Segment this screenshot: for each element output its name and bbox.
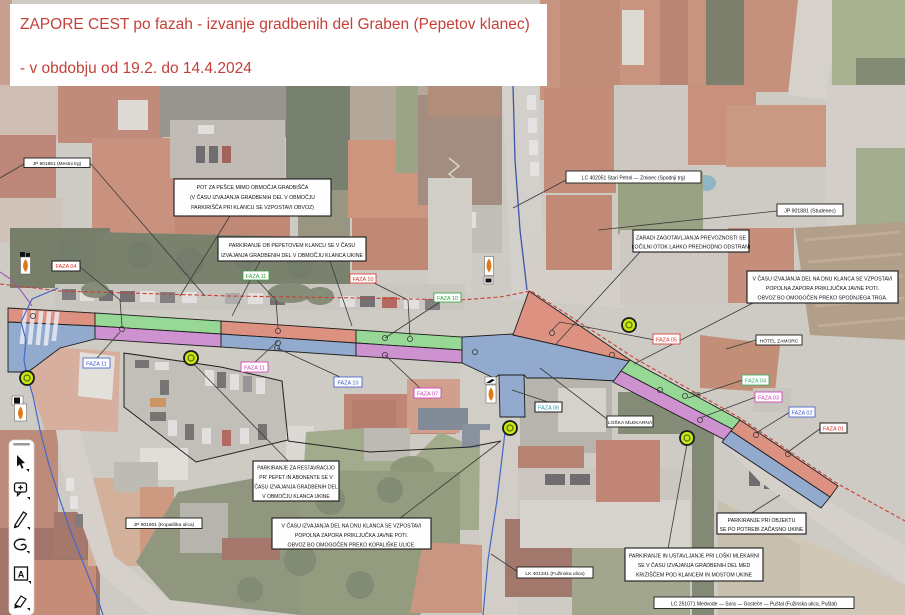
svg-text:PARKIRANJE PRI OBJEKTU: PARKIRANJE PRI OBJEKTU [728,518,796,524]
svg-text:OBVOZ BO OMOGOČEN PREKO KOPALI: OBVOZ BO OMOGOČEN PREKO KOPALIŠKE ULICE. [288,542,416,549]
svg-text:LK 401341 (Fužinska ulica): LK 401341 (Fužinska ulica) [525,571,585,577]
svg-text:FAZA 07: FAZA 07 [417,392,438,398]
svg-text:FAZA 11: FAZA 11 [244,366,265,372]
svg-text:OBVOZ BO OMOGOČEN PREKO SPODNJ: OBVOZ BO OMOGOČEN PREKO SPODNJEGA TRGA. [758,295,888,302]
svg-text:FAZA 10: FAZA 10 [337,381,358,387]
svg-text:FAZA 02: FAZA 02 [791,411,812,417]
svg-text:FAZA 04: FAZA 04 [55,264,76,270]
svg-text:LC 251071 Medvode — Sora — Gos: LC 251071 Medvode — Sora — Gosteče — Puš… [671,601,837,607]
svg-text:FAZA 03: FAZA 03 [758,396,779,402]
svg-text:LC 402051 Stari Petrol — Zmine: LC 402051 Stari Petrol — Zminec (Spodnji… [582,176,686,182]
svg-text:V ČASU IZVAJANJA DEL NA DNU KL: V ČASU IZVAJANJA DEL NA DNU KLANCA SE VZ… [753,276,893,283]
svg-text:LOČILNI OTOK LAHKO PREDHODNO O: LOČILNI OTOK LAHKO PREDHODNO ODSTRANI [632,244,751,251]
svg-text:SE PO POTREBI ZAČASNO UKINE: SE PO POTREBI ZAČASNO UKINE [720,526,804,533]
svg-text:ZARADI ZAGOTAVLJANJA PREVOZNOS: ZARADI ZAGOTAVLJANJA PREVOZNOSTI SE [636,236,746,242]
svg-text:V OBMOČJU KLANCA UKINE: V OBMOČJU KLANCA UKINE [262,493,330,500]
svg-text:FAZA 11: FAZA 11 [246,274,267,280]
svg-text:JP 901881 (Studenec): JP 901881 (Studenec) [784,209,836,215]
svg-text:SE V ČASU IZVAJANJA GRADBENIH: SE V ČASU IZVAJANJA GRADBENIH DEL MED [638,562,751,569]
svg-text:FAZA 10: FAZA 10 [437,296,458,302]
svg-text:PARKIRANJE IN USTAVLJANJE PRI: PARKIRANJE IN USTAVLJANJE PRI LOŠKI MLEK… [629,553,759,560]
svg-text:FAZA 11: FAZA 11 [86,362,107,368]
svg-text:KRIŽIŠČEM POD KLANCEM IN MOSTO: KRIŽIŠČEM POD KLANCEM IN MOSTOM UKINE [636,571,753,579]
svg-text:PR' PEPET IN ABONENTE SE V: PR' PEPET IN ABONENTE SE V [259,475,333,481]
svg-text:HOTEL ZAMORC: HOTEL ZAMORC [760,339,799,345]
svg-text:PARKIRANJE OB PEPETOVEM KLANCU: PARKIRANJE OB PEPETOVEM KLANCU SE V ČASU [229,242,356,249]
svg-text:V ČASU IZVAJANJA DEL NA DNU KL: V ČASU IZVAJANJA DEL NA DNU KLANCA SE VZ… [282,523,422,530]
svg-text:FAZA 10: FAZA 10 [352,277,373,283]
svg-text:ČASU IZVAJANJA GRADBENIH DEL: ČASU IZVAJANJA GRADBENIH DEL [254,484,337,491]
svg-text:FAZA 06: FAZA 06 [538,406,559,412]
svg-text:LOŠKA MLEKARNA: LOŠKA MLEKARNA [608,419,653,426]
svg-text:A: A [18,570,25,580]
svg-text:FAZA 01: FAZA 01 [823,427,844,433]
svg-text:POPOLNA ZAPORA PRIKLJUČKA JAVN: POPOLNA ZAPORA PRIKLJUČKA JAVNE POTI. [295,532,408,539]
svg-text:ZAPORE CEST po fazah - izvanje: ZAPORE CEST po fazah - izvanje gradbenih… [20,16,530,33]
svg-text:POPOLNA ZAPORA PRIKLJUČKA JAVN: POPOLNA ZAPORA PRIKLJUČKA JAVNE POTI. [766,285,879,292]
svg-text:PARKIRIŠČA PRI KLANCU SE VZPOS: PARKIRIŠČA PRI KLANCU SE VZPOSTAVI OBVOZ… [191,204,314,211]
svg-text:- v obdobju od 19.2. do 14.4.2: - v obdobju od 19.2. do 14.4.2024 [20,60,252,77]
svg-text:FAZA 05: FAZA 05 [656,338,677,344]
svg-text:IZVAJANJA GRADBENIH DEL V OBMO: IZVAJANJA GRADBENIH DEL V OBMOČJU KLANCA… [221,252,363,259]
svg-text:JP 901851 (Mestni trg): JP 901851 (Mestni trg) [33,161,82,167]
svg-text:FAZA 04: FAZA 04 [745,379,766,385]
svg-text:(V ČASU IZVAJANJA GRADBENIH DE: (V ČASU IZVAJANJA GRADBENIH DEL V OBMOČJ… [190,194,315,201]
svg-text:JP 901901 (Kopališka ulica): JP 901901 (Kopališka ulica) [134,522,195,528]
svg-text:POT ZA PEŠCE MIMO OBMOČJA GRAD: POT ZA PEŠCE MIMO OBMOČJA GRADBIŠČA [197,184,309,191]
svg-text:PARKIRANJE ZA RESTAVRACIJO: PARKIRANJE ZA RESTAVRACIJO [257,466,335,472]
